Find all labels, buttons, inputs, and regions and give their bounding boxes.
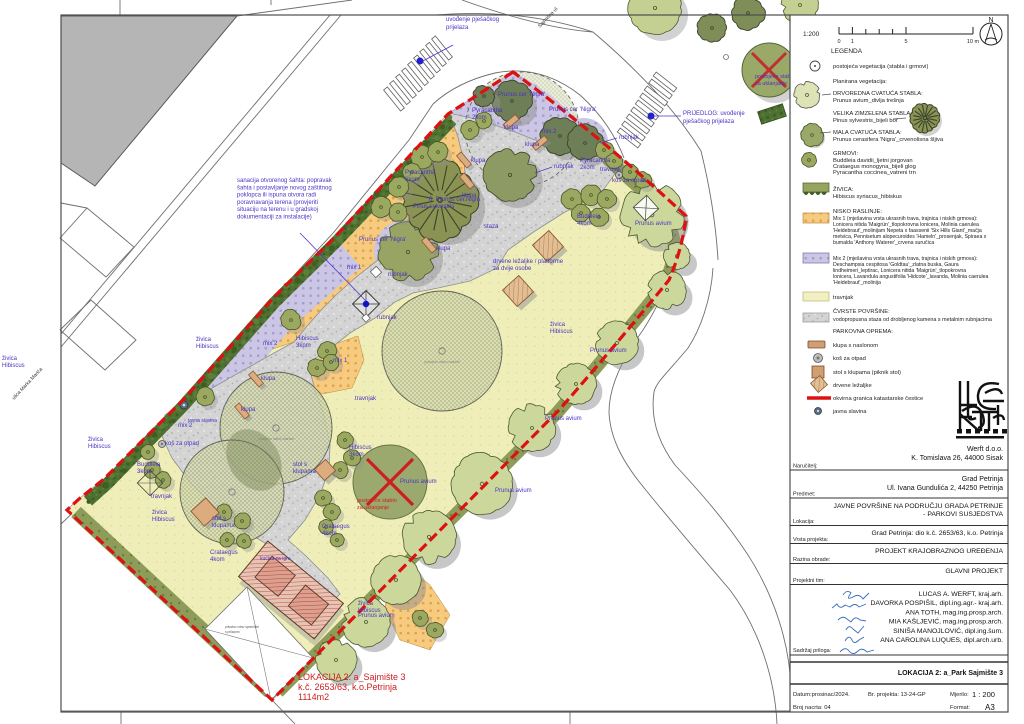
svg-text:Prunus cer 'Nigra': Prunus cer 'Nigra' bbox=[359, 237, 406, 243]
svg-text:4kom: 4kom bbox=[322, 531, 337, 537]
svg-text:klupama: klupama bbox=[293, 469, 316, 475]
svg-text:2kom: 2kom bbox=[472, 115, 487, 121]
svg-text:poklopca ili ispuna otvora rad: poklopca ili ispuna otvora radi bbox=[237, 193, 316, 199]
svg-text:mix 2: mix 2 bbox=[263, 341, 278, 347]
svg-text:Hibiscus syriacus_hibiskus: Hibiscus syriacus_hibiskus bbox=[833, 194, 902, 200]
svg-text:Lokacija:: Lokacija: bbox=[793, 519, 815, 525]
svg-text:okvirna granica katastarske če: okvirna granica katastarske čestice bbox=[833, 396, 923, 402]
svg-text:postojeće stablo: postojeće stablo bbox=[755, 74, 795, 80]
svg-text:1: 1 bbox=[851, 39, 854, 45]
svg-text:Prunus avium: Prunus avium bbox=[635, 221, 672, 227]
svg-text:mix 1: mix 1 bbox=[347, 265, 362, 271]
svg-text:1114m2: 1114m2 bbox=[298, 692, 329, 702]
svg-text:pješačkog prijelaza: pješačkog prijelaza bbox=[683, 119, 735, 125]
svg-text:stol s klupama (piknik stol): stol s klupama (piknik stol) bbox=[833, 370, 901, 376]
svg-text:Predmet:: Predmet: bbox=[793, 492, 816, 498]
svg-text:postojeća vegetacija (stabla i: postojeća vegetacija (stabla i grmovi) bbox=[833, 64, 928, 70]
svg-text:travnjak: travnjak bbox=[355, 396, 377, 402]
svg-text:vodopropusna staza od drobljen: vodopropusna staza od drobljenog kamena … bbox=[833, 317, 992, 323]
svg-text:DAVORKA POSPIŠIL, dipl.ing.agr: DAVORKA POSPIŠIL, dipl.ing.agr.- kraj.ar… bbox=[871, 598, 1004, 607]
svg-text:Hibiscus: Hibiscus bbox=[88, 444, 111, 450]
svg-text:postojeće stablo zadržati: postojeće stablo zadržati bbox=[424, 360, 459, 364]
svg-text:4kom: 4kom bbox=[577, 221, 592, 227]
svg-text:ŽIVICA:: ŽIVICA: bbox=[833, 185, 854, 193]
svg-text:klupa s naslonom: klupa s naslonom bbox=[833, 343, 878, 349]
svg-text:Prunus avium: Prunus avium bbox=[495, 488, 532, 494]
svg-text:GRMOVI:: GRMOVI: bbox=[833, 151, 859, 157]
svg-text:A3: A3 bbox=[985, 703, 995, 712]
svg-text:Buddleia: Buddleia bbox=[137, 462, 161, 468]
svg-text:rubnjak: rubnjak bbox=[619, 135, 640, 141]
svg-text:Prunus avium_divlja trešnja: Prunus avium_divlja trešnja bbox=[833, 98, 905, 104]
svg-text:za dvije osobe: za dvije osobe bbox=[493, 266, 532, 272]
svg-text:1:200: 1:200 bbox=[803, 31, 820, 38]
svg-text:Pyracantha: Pyracantha bbox=[405, 170, 436, 176]
svg-text:klupa: klupa bbox=[525, 142, 540, 148]
svg-text:koš za otpad: koš za otpad bbox=[833, 356, 866, 362]
svg-text:klupa: klupa bbox=[261, 376, 276, 382]
svg-text:s prilazom: s prilazom bbox=[225, 630, 240, 634]
svg-text:4kom: 4kom bbox=[210, 557, 225, 563]
svg-text:3kpm: 3kpm bbox=[296, 343, 311, 349]
svg-text:Grad Petrinja: Grad Petrinja bbox=[962, 476, 1003, 483]
svg-text:5: 5 bbox=[904, 39, 907, 45]
svg-text:3kom: 3kom bbox=[349, 452, 364, 458]
svg-text:Prunus avium: Prunus avium bbox=[400, 479, 437, 485]
svg-text:Prunus avium: Prunus avium bbox=[358, 613, 395, 619]
svg-text:Pyracantha coccinea_vatreni tr: Pyracantha coccinea_vatreni trn bbox=[833, 170, 916, 176]
svg-text:travnjak: travnjak bbox=[833, 295, 853, 301]
svg-text:0: 0 bbox=[837, 39, 840, 45]
svg-text:SINIŠA MANOJLOVIĆ, dipl.ing.šu: SINIŠA MANOJLOVIĆ, dipl.ing.šum. bbox=[893, 626, 1003, 635]
svg-text:Pyracantha: Pyracantha bbox=[580, 158, 611, 164]
svg-text:Prunus avium: Prunus avium bbox=[590, 348, 627, 354]
svg-text:klupa: klupa bbox=[471, 158, 486, 164]
svg-text:Crataegus: Crataegus bbox=[210, 550, 238, 556]
svg-text:živica: živica bbox=[358, 601, 374, 607]
svg-text:k.č. 2653/63, k.o.Petrinja: k.č. 2653/63, k.o.Petrinja bbox=[298, 682, 397, 692]
svg-text:bumalda 'Anthony Waterer'_crve: bumalda 'Anthony Waterer'_crvena suručic… bbox=[833, 240, 934, 246]
svg-text:živica: živica bbox=[196, 337, 212, 343]
svg-text:VELIKA ZIMZELENA STABLA:: VELIKA ZIMZELENA STABLA: bbox=[833, 111, 912, 117]
svg-text:za uklanjanje: za uklanjanje bbox=[755, 81, 787, 87]
svg-text:6kom: 6kom bbox=[405, 177, 420, 183]
svg-text:ANA CAROLINA LUQUES, dipl.arch: ANA CAROLINA LUQUES, dipl.arch.urb. bbox=[880, 637, 1003, 644]
svg-text:10 m: 10 m bbox=[967, 39, 980, 45]
svg-text:Hibiscus: Hibiscus bbox=[550, 329, 573, 335]
svg-text:prijelaza: prijelaza bbox=[446, 25, 469, 31]
svg-text:travnjak: travnjak bbox=[151, 494, 173, 500]
svg-text:MIA KAŠLJEVIĆ, mag.ing.prosp.a: MIA KAŠLJEVIĆ, mag.ing.prosp.arch. bbox=[889, 617, 1003, 626]
svg-text:Mjerilo:: Mjerilo: bbox=[950, 692, 969, 698]
svg-text:za uklanjanje: za uklanjanje bbox=[357, 505, 389, 511]
svg-text:3kom: 3kom bbox=[137, 469, 152, 475]
svg-text:klupama: klupama bbox=[212, 523, 235, 529]
svg-text:Format:: Format: bbox=[950, 705, 970, 711]
svg-text:šahta i postavljanje novog zaš: šahta i postavljanje novog zaštitnog bbox=[237, 185, 332, 191]
svg-text:Sadržaj priloga:: Sadržaj priloga: bbox=[793, 648, 832, 654]
svg-text:PRIJEDLOG: uvođenje: PRIJEDLOG: uvođenje bbox=[683, 111, 745, 117]
svg-text:2kom: 2kom bbox=[580, 165, 595, 171]
svg-text:drvene ležaljke: drvene ležaljke bbox=[833, 383, 872, 389]
svg-text:Br. projekta: 13-24-GP: Br. projekta: 13-24-GP bbox=[868, 692, 926, 698]
svg-text:Prunus avium: Prunus avium bbox=[545, 416, 582, 422]
svg-text:6. Prunus cer.Nigra: 6. Prunus cer.Nigra bbox=[429, 197, 481, 203]
svg-text:Werft d.o.o.: Werft d.o.o. bbox=[967, 446, 1003, 453]
svg-text:PROJEKT KRAJOBRAZNOG UREĐENJA: PROJEKT KRAJOBRAZNOG UREĐENJA bbox=[875, 548, 1003, 555]
svg-text:privatno vrtno spremište: privatno vrtno spremište bbox=[225, 625, 259, 629]
svg-text:Grad Petrinja: dio k.č. 2653/6: Grad Petrinja: dio k.č. 2653/63, k.o. Pe… bbox=[872, 530, 1004, 537]
svg-text:kućica za igru: kućica za igru bbox=[260, 556, 291, 562]
svg-text:Hibiscus: Hibiscus bbox=[152, 517, 175, 523]
svg-text:klupa: klupa bbox=[436, 246, 451, 252]
svg-text:živica: živica bbox=[2, 356, 18, 362]
svg-text:koš za otpad: koš za otpad bbox=[612, 178, 646, 184]
svg-text:rubnjak: rubnjak bbox=[377, 315, 398, 321]
svg-text:travnjak: travnjak bbox=[600, 167, 622, 173]
svg-text:'Heidebraut'_molinija: 'Heidebraut'_molinija bbox=[833, 280, 881, 286]
svg-text:mix 2: mix 2 bbox=[542, 129, 557, 135]
svg-text:Prunus cerasifera 'Nigra'_crve: Prunus cerasifera 'Nigra'_crvenolisna šl… bbox=[833, 137, 944, 143]
svg-text:Hibiscus: Hibiscus bbox=[296, 336, 319, 342]
svg-text:N: N bbox=[988, 17, 993, 24]
svg-text:ČVRSTE POVRŠINE:: ČVRSTE POVRŠINE: bbox=[833, 308, 890, 315]
svg-text:ANA TOTH, mag.ing.prosp.arch.: ANA TOTH, mag.ing.prosp.arch. bbox=[905, 609, 1003, 616]
svg-text:Razina obrade:: Razina obrade: bbox=[793, 557, 831, 563]
svg-text:Crataegus: Crataegus bbox=[322, 524, 350, 530]
svg-text:Pyracantha: Pyracantha bbox=[472, 108, 503, 114]
svg-text:Projektni tim:: Projektni tim: bbox=[793, 578, 825, 584]
svg-text:koš za otpad: koš za otpad bbox=[165, 441, 199, 447]
svg-text:Buddleia: Buddleia bbox=[577, 214, 601, 220]
svg-text:klupa: klupa bbox=[504, 125, 519, 131]
svg-text:Hibiscus: Hibiscus bbox=[196, 344, 219, 350]
svg-text:LOKACIJA 2: a_Park Sajmište 3: LOKACIJA 2: a_Park Sajmište 3 bbox=[898, 670, 1003, 677]
svg-text:poravnavanja terena (provjerit: poravnavanja terena (provjeriti bbox=[237, 200, 318, 206]
svg-text:MALA CVATUĆA STABLA:: MALA CVATUĆA STABLA: bbox=[833, 129, 902, 136]
svg-text:živica: živica bbox=[152, 510, 168, 516]
svg-text:mix 1: mix 1 bbox=[333, 358, 348, 364]
svg-text:živica: živica bbox=[88, 437, 104, 443]
svg-text:K. Tomislava 26, 44000 Sisak: K. Tomislava 26, 44000 Sisak bbox=[911, 455, 1003, 462]
svg-text:stol s: stol s bbox=[293, 462, 307, 468]
svg-text:Vrsta projekta:: Vrsta projekta: bbox=[793, 537, 829, 543]
svg-text:LOKACIJA 2: a_Sajmište 3: LOKACIJA 2: a_Sajmište 3 bbox=[298, 672, 406, 682]
svg-text:postojeće stablo: postojeće stablo bbox=[357, 498, 397, 504]
svg-text:javna slavina: javna slavina bbox=[187, 418, 217, 424]
svg-text:DRVOREDNA CVATUĆA STABLA:: DRVOREDNA CVATUĆA STABLA: bbox=[833, 90, 923, 97]
svg-text:GLAVNI PROJEKT: GLAVNI PROJEKT bbox=[945, 568, 1003, 575]
svg-text:Naručitelj:: Naručitelj: bbox=[793, 464, 818, 470]
svg-text:LEGENDA: LEGENDA bbox=[831, 48, 863, 55]
svg-text:staza: staza bbox=[484, 224, 499, 230]
svg-text:situaciju na terenu i u gradsk: situaciju na terenu i u gradskoj bbox=[237, 207, 318, 213]
svg-text:PARKOVNA OPREMA:: PARKOVNA OPREMA: bbox=[833, 329, 893, 335]
svg-text:- PARKOVI SUSJEDSTVA: - PARKOVI SUSJEDSTVA bbox=[923, 511, 1003, 518]
svg-text:sanacija otvorenog šahta: popr: sanacija otvorenog šahta: popravak bbox=[237, 178, 333, 184]
svg-text:Hibiscus: Hibiscus bbox=[349, 445, 372, 451]
svg-text:LUCAS A. WERFT, kraj.arh.: LUCAS A. WERFT, kraj.arh. bbox=[919, 591, 1003, 598]
svg-text:dokumentaciji za instalacije): dokumentaciji za instalacije) bbox=[237, 215, 312, 221]
svg-text:stol s: stol s bbox=[212, 516, 226, 522]
svg-text:živica: živica bbox=[550, 322, 566, 328]
svg-text:JAVNE POVRŠINE NA PODRUČJU GRA: JAVNE POVRŠINE NA PODRUČJU GRADA PETRINJ… bbox=[834, 501, 1004, 510]
svg-text:javna slavina: javna slavina bbox=[832, 409, 867, 415]
svg-text:Broj nacrta: 04: Broj nacrta: 04 bbox=[793, 705, 831, 711]
svg-text:Ul. Ivana Gundulića 2, 44250 P: Ul. Ivana Gundulića 2, 44250 Petrinja bbox=[887, 485, 1003, 492]
svg-text:Pinus sylvestris: Pinus sylvestris bbox=[413, 204, 454, 210]
svg-text:Prunus cer 'Nigra': Prunus cer 'Nigra' bbox=[498, 92, 545, 98]
svg-text:1 : 200: 1 : 200 bbox=[972, 690, 995, 699]
svg-text:Pinus sylvestris_bijeli bor: Pinus sylvestris_bijeli bor bbox=[833, 118, 898, 124]
svg-text:rubnjak: rubnjak bbox=[554, 164, 575, 170]
svg-text:Prunus cer 'Nigra': Prunus cer 'Nigra' bbox=[549, 107, 596, 113]
svg-text:klupa: klupa bbox=[241, 407, 256, 413]
svg-text:rubnjak: rubnjak bbox=[388, 272, 409, 278]
svg-text:uvođenje pješačkog: uvođenje pješačkog bbox=[446, 17, 499, 23]
svg-text:NISKO RASLINJE:: NISKO RASLINJE: bbox=[833, 209, 882, 215]
svg-text:Datum:prosinac/2024.: Datum:prosinac/2024. bbox=[793, 692, 850, 698]
svg-text:drvene ležaljke / platforme: drvene ležaljke / platforme bbox=[493, 259, 564, 265]
svg-text:Planirana vegetacija:: Planirana vegetacija: bbox=[833, 79, 887, 85]
svg-text:Hibiscus: Hibiscus bbox=[2, 363, 25, 369]
